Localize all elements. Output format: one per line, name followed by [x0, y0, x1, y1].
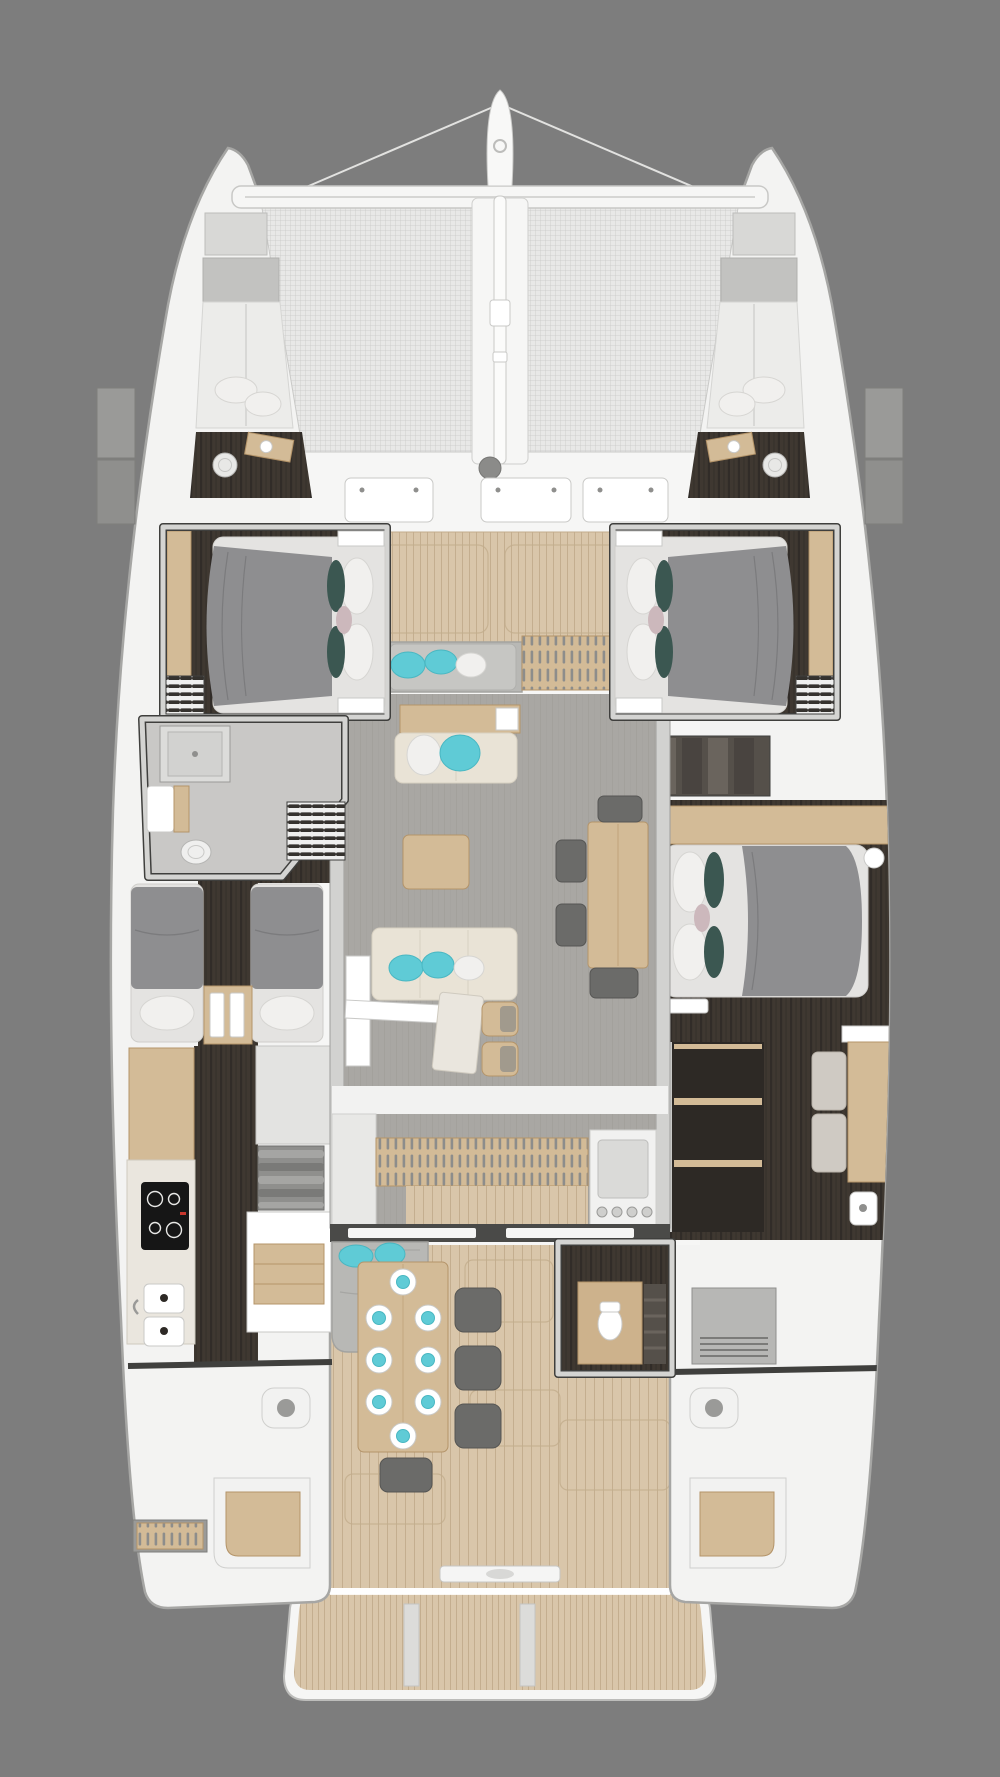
galley-drawer-cabinet: [247, 1212, 331, 1332]
starboard-forward-cabin: [613, 527, 837, 717]
galley-cabinet: [129, 1048, 194, 1160]
nightstand: [338, 531, 384, 546]
forward-cockpit-teak: [352, 532, 652, 650]
coffee-table: [403, 835, 469, 889]
beam-fitting: [493, 352, 507, 362]
pillow: [454, 956, 484, 980]
starboard-side-lockers: [865, 388, 903, 524]
transom-fitting: [486, 1569, 514, 1579]
toilet: [213, 453, 237, 477]
shower-drain: [192, 751, 198, 757]
side-table: [864, 848, 884, 868]
stbd-aft-bulkhead: [672, 1368, 880, 1372]
twin-bed-right: [251, 884, 323, 1042]
pillow: [704, 926, 724, 978]
galley-tall-cabinet: [256, 1046, 330, 1144]
cockpit-dining-table: [358, 1262, 448, 1452]
floorplan-canvas: [0, 0, 1000, 1777]
deck-hatch: [583, 478, 668, 522]
toilet: [598, 1308, 622, 1340]
toilet: [181, 840, 211, 864]
place-setting: [415, 1347, 441, 1373]
place-setting: [415, 1305, 441, 1331]
sliding-door-panel: [348, 1228, 476, 1238]
starboard-coaming-pod: [690, 1388, 738, 1428]
port-stern-step: [133, 1520, 207, 1552]
slatted-panel: [522, 636, 614, 690]
beam-fitting: [490, 300, 510, 326]
dining-chair: [556, 904, 586, 946]
pillow: [673, 924, 707, 980]
port-forward-cabin: [163, 527, 387, 717]
place-setting: [366, 1305, 392, 1331]
port-bow-backrest: [203, 258, 279, 306]
cockpit-chair: [455, 1404, 501, 1448]
pillow: [341, 558, 373, 614]
place-setting: [366, 1347, 392, 1373]
starboard-aft-bench: [690, 1478, 786, 1568]
windlass: [479, 457, 501, 479]
pillow: [407, 735, 441, 775]
owner-cabin: [652, 806, 902, 1013]
catamaran-floorplan: [0, 0, 1000, 1777]
pillow: [673, 852, 707, 912]
salon-sofa-aft: [372, 928, 517, 1000]
nightstand: [664, 999, 708, 1013]
cockpit-chair: [380, 1458, 432, 1492]
deck-hatch: [345, 478, 433, 522]
pillow: [245, 392, 281, 416]
pillow: [391, 652, 425, 678]
pillow: [694, 904, 710, 932]
port-bow-locker: [205, 213, 267, 255]
port-side-lockers: [97, 388, 135, 524]
platform-top-trim: [330, 1588, 670, 1595]
twin-bed-left: [131, 884, 203, 1042]
place-setting: [366, 1389, 392, 1415]
place-setting: [390, 1423, 416, 1449]
nightstand: [338, 698, 384, 713]
place-setting: [415, 1389, 441, 1415]
place-setting: [390, 1269, 416, 1295]
owner-headboard: [652, 806, 902, 844]
deck-hatch: [481, 478, 571, 522]
vent-cabinet: [376, 1138, 588, 1186]
cockpit-day-head: [558, 1242, 672, 1374]
port-aft-bench: [214, 1478, 310, 1568]
ladder-recess-left: [404, 1604, 419, 1686]
pillow: [425, 650, 457, 674]
dining-chair: [556, 840, 586, 882]
sliding-door-panel: [506, 1228, 634, 1238]
salon-sofa-forward: [395, 733, 517, 783]
foredeck-hatches: [345, 478, 668, 522]
pillow: [704, 852, 724, 908]
pillow: [336, 606, 352, 634]
pillow: [260, 996, 314, 1030]
louver-rack: [166, 676, 204, 714]
cockpit-chair: [455, 1288, 501, 1332]
port-wardrobe-louvers: [287, 802, 345, 860]
galley-aft-counter: [332, 1086, 668, 1114]
platform-teak: [294, 1594, 706, 1690]
pillow: [440, 735, 480, 771]
cockpit-chair: [455, 1346, 501, 1390]
engine-hatch: [692, 1288, 776, 1364]
fridge-column: [332, 1114, 376, 1232]
port-companionway-stairs: [258, 1146, 324, 1210]
dining-chair: [598, 796, 642, 822]
pillow: [389, 955, 423, 981]
twin-nightstand: [204, 986, 252, 1044]
bathroom-sink: [147, 786, 174, 832]
pillow: [456, 653, 486, 677]
pillow: [327, 560, 345, 612]
pillow: [140, 996, 194, 1030]
owner-duvet: [742, 846, 862, 996]
day-head-stairs: [644, 1284, 666, 1364]
ladder-recess-right: [520, 1604, 535, 1686]
oven-unit: [590, 1130, 656, 1232]
island-counter: [432, 992, 484, 1074]
pillow: [422, 952, 454, 978]
dining-chair: [590, 968, 638, 998]
salon-wall-starboard: [656, 648, 670, 1228]
swim-platform: [284, 1586, 716, 1700]
induction-cooktop: [141, 1182, 189, 1250]
pillow: [327, 626, 345, 678]
tissue-box: [496, 708, 518, 730]
longitudinal-beam: [494, 196, 506, 464]
port-coaming-pod: [262, 1388, 310, 1428]
galley-aft-bulkhead: [128, 1362, 332, 1366]
